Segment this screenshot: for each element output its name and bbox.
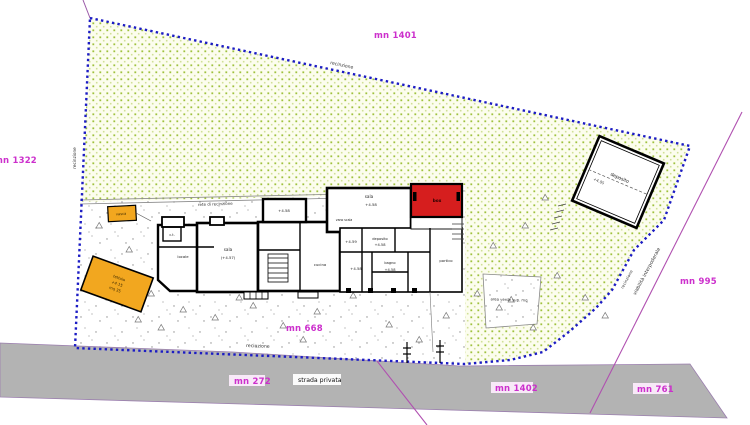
recinzione-bottom-label: recinzione	[246, 343, 270, 350]
room-label-bagno-level: +4.58	[384, 268, 396, 272]
boundary-extension-line	[83, 0, 90, 18]
parcel-label-mn1322: mn 1322	[0, 156, 37, 166]
room-label-ct: c.t.	[169, 233, 174, 237]
parcel-label-mn995: mn 995	[680, 277, 717, 287]
water-tank-label: vasca	[116, 212, 127, 217]
room-label-vano-scala: vano scala	[336, 218, 353, 222]
room-label-sala: sala	[224, 247, 233, 252]
site-plan-drawing: deposito +4.05	[0, 0, 750, 425]
room-label-deposito-level: +4.58	[374, 243, 386, 247]
staircase	[268, 254, 288, 282]
room-label-deposito: deposito	[372, 237, 387, 241]
road-name-label: strada privata	[298, 377, 342, 384]
room-label-459: +4.59	[345, 239, 357, 244]
parcel-label-mn272: mn 272	[234, 377, 271, 387]
room-label-sala2-level: +4.58	[365, 202, 377, 207]
recinzione-left-label: recinzione	[72, 147, 77, 169]
room-label-sala2: sala	[365, 194, 374, 199]
room-label-portico: portico	[439, 258, 453, 263]
parcel-label-mn668: mn 668	[286, 324, 323, 334]
parcel-label-mn1402: mn 1402	[495, 384, 538, 394]
parcel-label-mn1401: mn 1401	[374, 31, 417, 41]
viabilita-interpoderale-label: viabilità interpoderale	[631, 246, 662, 296]
room-label-cucina: cucina	[314, 262, 326, 267]
room-label-bump-level: +4.58	[278, 208, 290, 213]
red-room-label: box	[433, 198, 442, 203]
room-label-458b: +4.58	[350, 266, 362, 271]
room-label-sala-level: (+4.57)	[221, 255, 236, 260]
room-label-locale: locale	[177, 254, 189, 259]
parcel-label-mn761: mn 761	[637, 385, 674, 395]
red-room: box	[411, 184, 462, 217]
site-plan-canvas: deposito +4.05	[0, 0, 750, 425]
room-label-bagno: bagno	[384, 261, 395, 265]
